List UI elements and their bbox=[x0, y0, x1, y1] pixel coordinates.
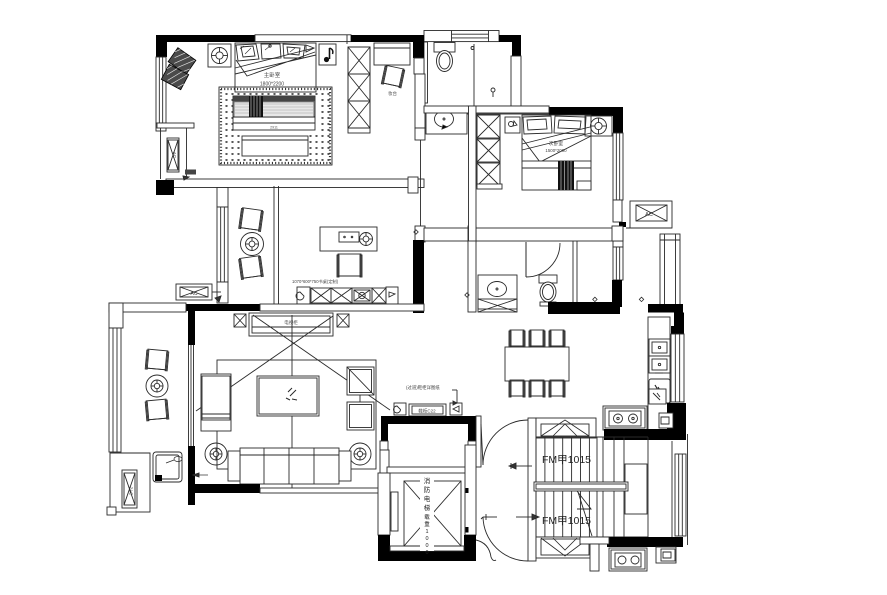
svg-text:电: 电 bbox=[424, 494, 431, 503]
svg-text:0: 0 bbox=[425, 536, 428, 542]
svg-text:AC: AC bbox=[191, 291, 198, 297]
svg-text:重: 重 bbox=[424, 520, 430, 528]
svg-text:主卧室: 主卧室 bbox=[264, 71, 281, 79]
svg-text:鞋柜C22: 鞋柜C22 bbox=[418, 408, 436, 415]
svg-text:消: 消 bbox=[424, 476, 431, 485]
svg-text:电视柜: 电视柜 bbox=[284, 319, 298, 326]
svg-text:0: 0 bbox=[425, 550, 428, 556]
svg-text:(过道)鞋柜详图纸: (过道)鞋柜详图纸 bbox=[406, 384, 440, 391]
svg-text:2AC: 2AC bbox=[129, 487, 134, 497]
svg-text:FM甲1015: FM甲1015 bbox=[542, 454, 591, 466]
svg-text:AC: AC bbox=[172, 152, 177, 159]
svg-text:载: 载 bbox=[424, 513, 430, 521]
svg-text:2911: 2911 bbox=[270, 126, 278, 130]
svg-text:0: 0 bbox=[425, 543, 428, 549]
svg-text:1500*2000: 1500*2000 bbox=[545, 148, 567, 153]
svg-text:妆台: 妆台 bbox=[388, 90, 397, 97]
svg-text:1: 1 bbox=[425, 529, 428, 535]
svg-text:防: 防 bbox=[424, 485, 431, 494]
svg-text:次卧室: 次卧室 bbox=[549, 140, 564, 147]
svg-text:1070*600*750书桌(定制): 1070*600*750书桌(定制) bbox=[292, 278, 339, 285]
svg-text:AC: AC bbox=[645, 212, 653, 218]
svg-text:梯: 梯 bbox=[424, 503, 431, 512]
svg-text:FM甲1015: FM甲1015 bbox=[542, 515, 591, 527]
